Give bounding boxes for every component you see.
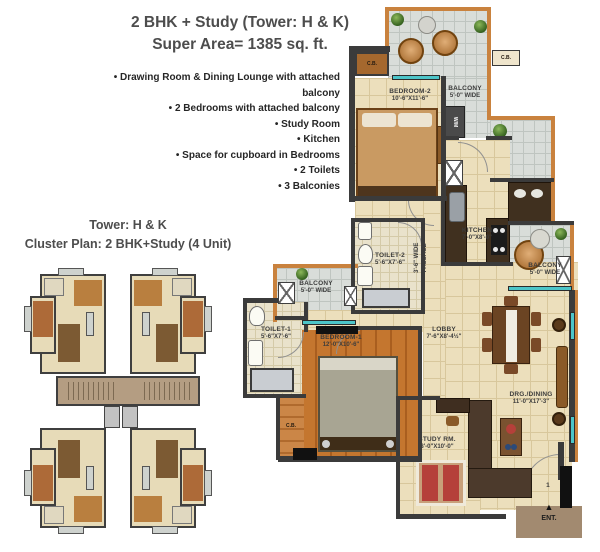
feature-item: • 3 Balconies (88, 179, 340, 195)
kitchen-counter-top (508, 182, 552, 222)
dining-table (492, 306, 530, 364)
wall-segment (486, 136, 512, 140)
passage-line2: PASSAGE (422, 226, 430, 290)
outer-trim (273, 264, 277, 322)
feature-item: • 2 Toilets (88, 163, 340, 179)
wall-segment (396, 396, 440, 400)
room-dim: 5'-0" WIDE (292, 288, 340, 296)
room-label-balcony-top: BALCONY 5'-0" WIDE (441, 85, 489, 101)
bed-bedroom2 (356, 108, 438, 200)
entrance-arrow-icon: ▲ (540, 502, 558, 512)
cupboard-bedroom1: C.B. (278, 394, 304, 458)
window-drg-right (570, 312, 575, 340)
balcony-chair (398, 38, 424, 64)
wall-segment (490, 178, 554, 182)
outer-trim (487, 7, 491, 120)
shower-tray-toilet1 (250, 368, 294, 392)
room-name: KITCHEN (457, 227, 497, 235)
dining-chair (531, 338, 541, 352)
room-label-bedroom2: BEDROOM-2 10'-6"X11'-6" (384, 88, 436, 104)
window-bedroom2-balcony (392, 75, 440, 80)
kitchen-counter-sink (445, 185, 467, 263)
window-balcony-drg (508, 286, 572, 291)
wall-segment (396, 396, 400, 518)
room-label-bedroom1: BEDROOM-1 12'-0"X10'-6" (312, 334, 370, 350)
wall-black-accent (316, 326, 358, 334)
study-desk (436, 398, 470, 413)
dining-chair (482, 338, 492, 352)
wall-entry-pier (560, 466, 572, 508)
cluster-lift (104, 406, 120, 428)
page-title: 2 BHK + Study (Tower: H & K) Super Area=… (88, 12, 392, 56)
cluster-title-line2: Cluster Plan: 2 BHK+Study (4 Unit) (18, 235, 238, 254)
plant-icon (391, 13, 404, 26)
sink-toilet2 (358, 222, 372, 240)
cluster-unit (120, 426, 206, 530)
plant-icon (555, 228, 567, 240)
outer-trim (551, 116, 555, 224)
room-label-kitchen: KITCHEN 7'-0"X8'-0" (457, 227, 497, 243)
room-dim: 8'-0"X10'-0" (412, 444, 462, 452)
room-name: TOILET-2 (366, 252, 414, 260)
room-name: TOILET-1 (250, 326, 302, 334)
feature-item: • Kitchen (88, 132, 340, 148)
passage-line1: 3'-6" WIDE (414, 226, 422, 290)
room-label-study: STUDY RM. 8'-0"X10'-0" (412, 436, 462, 452)
plant-icon (296, 268, 308, 280)
outer-trim (273, 264, 358, 268)
cluster-stairs-left (64, 382, 116, 400)
room-label-balcony-left: BALCONY 5'-0" WIDE (292, 280, 340, 296)
unit-number: 1 (540, 482, 556, 490)
cluster-unit (30, 272, 116, 376)
room-name: BEDROOM-2 (384, 88, 436, 96)
room-name: BALCONY (292, 280, 340, 288)
dining-chair (504, 364, 518, 374)
planter-pot (552, 318, 566, 332)
cluster-title: Tower: H & K Cluster Plan: 2 BHK+Study (… (18, 216, 238, 254)
outer-trim (385, 7, 491, 11)
cluster-unit (120, 272, 206, 376)
window-drg-right2 (570, 416, 575, 444)
study-chair (446, 416, 459, 426)
cluster-title-line1: Tower: H & K (18, 216, 238, 235)
room-dim: 5'-0" WIDE (522, 270, 568, 278)
feature-item: • 2 Bedrooms with attached balcony (88, 101, 340, 117)
wall-segment (356, 326, 422, 330)
page-title-line1: 2 BHK + Study (Tower: H & K) (88, 12, 392, 34)
duct-shaft (445, 160, 463, 186)
balcony-chair (432, 30, 458, 56)
cupboard-top-right: C.B. (492, 50, 520, 66)
dining-chair (504, 296, 518, 306)
wall-segment (351, 310, 425, 314)
balcony-plate (530, 229, 550, 249)
room-dim: 12'-0"X10'-6" (312, 342, 370, 350)
cluster-unit (30, 426, 116, 530)
wall-segment (508, 221, 574, 225)
wall-segment (349, 196, 447, 201)
tall-cabinet (556, 346, 568, 408)
cluster-lift (122, 406, 138, 428)
cluster-stairs-right (140, 382, 192, 400)
tub-toilet1 (248, 340, 263, 366)
cb-label: C.B. (501, 55, 511, 61)
dining-chair (482, 312, 492, 326)
room-dim: 5'-0" WIDE (441, 93, 489, 101)
room-label-lobby: LOBBY 7'-6"X8'-4½" (420, 326, 468, 342)
cluster-plan-thumbnail (22, 268, 238, 542)
balcony-table (418, 16, 436, 34)
room-name: DRG./DINING (505, 391, 557, 399)
study-rug (416, 460, 466, 506)
floorplan-page: 2 BHK + Study (Tower: H & K) Super Area=… (0, 0, 600, 552)
wall-segment (443, 136, 459, 140)
bed-bedroom1 (318, 356, 398, 452)
wall-segment (243, 298, 247, 398)
room-label-balcony-right: BALCONY 5'-0" WIDE (522, 262, 568, 278)
shower-tray-toilet2 (362, 288, 410, 308)
room-dim: 5'-6"X7'-6" (250, 334, 302, 342)
feature-item: • Study Room (88, 117, 340, 133)
wm-label: W/M (452, 117, 458, 127)
outer-trim (490, 116, 554, 120)
outer-trim (575, 290, 578, 462)
wall-segment (351, 218, 425, 222)
coffee-table (500, 418, 522, 456)
room-label-toilet1: TOILET-1 5'-6"X7'-6" (250, 326, 302, 342)
window-bedroom1-balcony (302, 320, 356, 325)
planter-pot (552, 412, 566, 426)
room-dim: 11'-0"X17'-3" (505, 399, 557, 407)
tub-toilet2 (357, 266, 373, 286)
room-dim: 7'-0"X8'-0" (457, 235, 497, 243)
page-title-line2: Super Area= 1385 sq. ft. (88, 34, 392, 56)
room-label-drg-dining: DRG./DINING 11'-0"X17'-3" (505, 391, 557, 407)
room-name: BEDROOM-1 (312, 334, 370, 342)
room-name: BALCONY (522, 262, 568, 270)
dining-chair (531, 312, 541, 326)
room-dim: 7'-6"X8'-4½" (420, 334, 468, 342)
duct-shaft (344, 286, 357, 306)
feature-item: • Space for cupboard in Bedrooms (88, 148, 340, 164)
plant-icon (474, 20, 487, 33)
room-name: STUDY RM. (412, 436, 462, 444)
room-dim: 5'-6"X7'-6" (366, 260, 414, 268)
cb-label: C.B. (286, 423, 296, 429)
washing-machine: W/M (445, 106, 465, 138)
room-name: BALCONY (441, 85, 489, 93)
wall-segment (304, 302, 308, 332)
wall-segment (441, 140, 445, 266)
cb-label: C.B. (367, 61, 377, 67)
room-dim: 10'-6"X11'-6" (384, 96, 436, 104)
feature-list: • Drawing Room & Dining Lounge with atta… (88, 70, 340, 194)
wall-segment (396, 514, 506, 519)
unit-number-badge: 1 (540, 482, 556, 490)
entrance-label: ENT. (534, 515, 564, 522)
wall-segment (243, 298, 279, 303)
wall-segment (441, 262, 513, 266)
sofa-l-horizontal (468, 468, 532, 498)
feature-item: • Drawing Room & Dining Lounge with atta… (88, 70, 340, 101)
room-label-passage: 3'-6" WIDE PASSAGE (414, 226, 430, 290)
wc-toilet1 (249, 306, 265, 326)
room-label-toilet2: TOILET-2 5'-6"X7'-6" (366, 252, 414, 268)
